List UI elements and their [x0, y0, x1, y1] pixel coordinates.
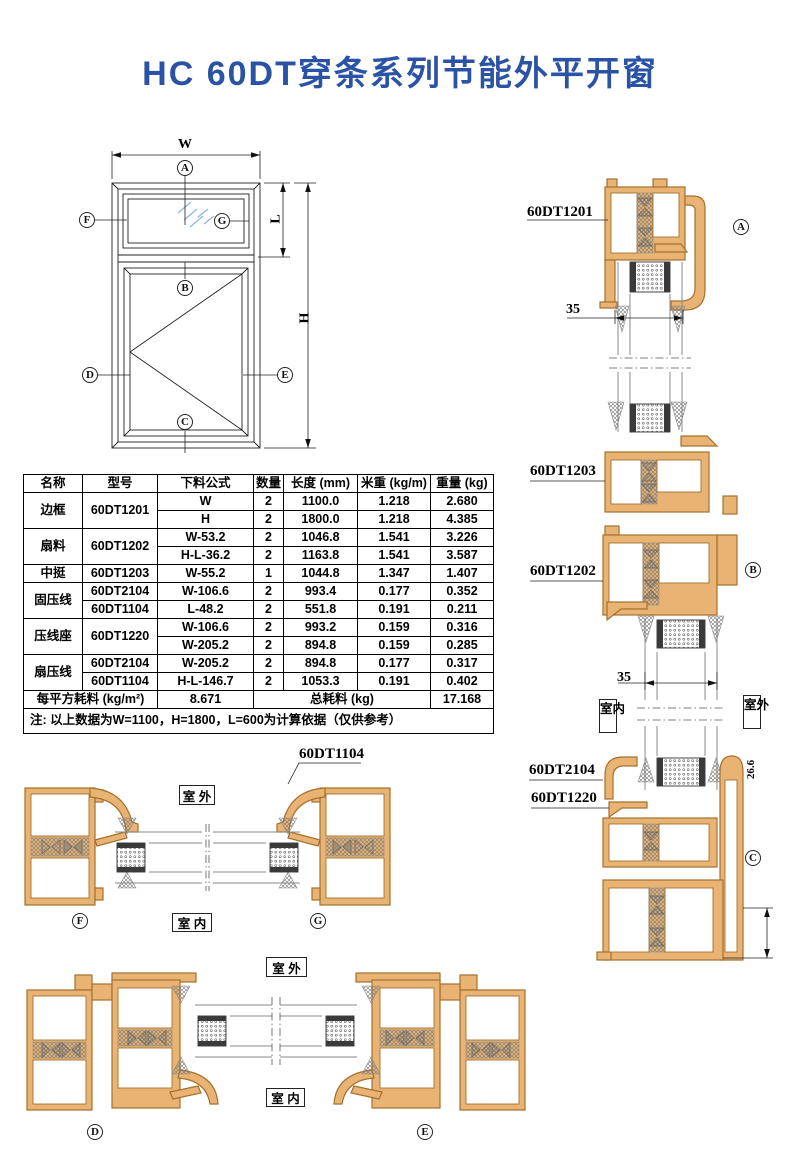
- page-title: HC 60DT穿条系列节能外平开窗: [0, 46, 800, 95]
- elevation-frame: [112, 183, 260, 448]
- cell-weight: 3.226: [431, 529, 494, 547]
- section-marker-c: C: [745, 850, 761, 866]
- elevation-upper-dim-label: L: [270, 214, 284, 223]
- cell-qty: 2: [254, 601, 284, 619]
- cell-weight: 3.587: [431, 547, 494, 565]
- table-row: 60DT1104 L-48.2 2 551.8 0.191 0.211: [24, 601, 494, 619]
- elevation-marker-b: B: [177, 280, 193, 296]
- cell-kgm: 1.347: [358, 565, 431, 583]
- elevation-marker-e: E: [277, 367, 293, 383]
- cell-kgm: 0.177: [358, 583, 431, 601]
- cell-name: 固压线: [24, 583, 83, 619]
- dim-35-mid: 35: [617, 671, 631, 685]
- cell-name: 扇压线: [24, 655, 83, 691]
- cell-model: 60DT2104: [83, 583, 158, 601]
- header-model: 型号: [83, 475, 158, 493]
- cell-qty: 2: [254, 529, 284, 547]
- section-b-upper-glass: [608, 372, 687, 432]
- page: HC 60DT穿条系列节能外平开窗 W L H A F G: [0, 0, 800, 1155]
- cell-length: 993.2: [284, 619, 358, 637]
- cell-model: 60DT1104: [83, 601, 158, 619]
- elevation-marker-a: A: [177, 160, 193, 176]
- cell-formula: H: [158, 511, 254, 529]
- cell-qty: 2: [254, 547, 284, 565]
- cell-qty: 2: [254, 637, 284, 655]
- section-marker-b: B: [745, 562, 761, 578]
- cell-formula: H-L-146.7: [158, 673, 254, 691]
- fg-outdoor-box: 室 外: [179, 785, 215, 805]
- header-weight: 重量 (kg): [431, 475, 494, 493]
- fg-right-profile-mirrored: [209, 788, 390, 905]
- table-row: 压线座 60DT1220 W-106.6 2 993.2 0.159 0.316: [24, 619, 494, 637]
- profile-label-60dt1202: 60DT1202: [530, 564, 596, 579]
- summary-per-sqm-value: 8.671: [158, 691, 254, 709]
- section-marker-e: E: [417, 1124, 433, 1140]
- fg-label-leader: [288, 763, 361, 784]
- profile-label-60dt2104: 60DT2104: [529, 763, 595, 778]
- cell-formula: W-106.6: [158, 619, 254, 637]
- cell-name: 压线座: [24, 619, 83, 655]
- cell-length: 894.8: [284, 655, 358, 673]
- table-header-row: 名称 型号 下料公式 数量 长度 (mm) 米重 (kg/m) 重量 (kg): [24, 475, 494, 493]
- de-right-profiles-mirrored: [280, 973, 525, 1110]
- section-b-sash-profile: [603, 526, 737, 620]
- cell-qty: 2: [254, 619, 284, 637]
- profile-label-60dt1104: 60DT1104: [299, 747, 364, 762]
- cell-length: 1800.0: [284, 511, 358, 529]
- cell-weight: 0.316: [431, 619, 494, 637]
- summary-total-value: 17.168: [431, 691, 494, 709]
- elevation-height-dim-label: H: [298, 313, 312, 324]
- header-length: 长度 (mm): [284, 475, 358, 493]
- table-note: 注: 以上数据为W=1100，H=1800，L=600为计算依据（仅供参考）: [24, 709, 494, 734]
- cell-length: 1100.0: [284, 493, 358, 511]
- elevation-marker-g: G: [214, 213, 230, 229]
- cell-weight: 0.317: [431, 655, 494, 673]
- cell-length: 1044.8: [284, 565, 358, 583]
- section-fg-drawing: [20, 742, 440, 938]
- cell-weight: 1.407: [431, 565, 494, 583]
- cell-qty: 2: [254, 493, 284, 511]
- section-marker-a: A: [733, 219, 749, 235]
- header-name: 名称: [24, 475, 83, 493]
- table-row: 扇压线 60DT2104 W-205.2 2 894.8 0.177 0.317: [24, 655, 494, 673]
- table-row: 固压线 60DT2104 W-106.6 2 993.4 0.177 0.352: [24, 583, 494, 601]
- section-c-profile: [597, 756, 743, 960]
- cell-model: 60DT1201: [83, 493, 158, 529]
- cell-weight: 0.211: [431, 601, 494, 619]
- elevation-marker-f: F: [79, 212, 95, 228]
- table-note-row: 注: 以上数据为W=1100，H=1800，L=600为计算依据（仅供参考）: [24, 709, 494, 734]
- header-qty: 数量: [254, 475, 284, 493]
- cell-formula: H-L-36.2: [158, 547, 254, 565]
- window-elevation-drawing: [60, 135, 360, 475]
- cell-weight: 4.385: [431, 511, 494, 529]
- cell-name: 扇料: [24, 529, 83, 565]
- elevation-dimensions: [95, 151, 316, 453]
- profile-label-60dt1220: 60DT1220: [531, 791, 597, 806]
- de-left-profiles: [27, 973, 272, 1110]
- section-c-glass: [638, 758, 724, 786]
- outdoor-box-vertical: 室外: [743, 695, 761, 729]
- cell-model: 60DT1203: [83, 565, 158, 583]
- profile-label-60dt1203: 60DT1203: [530, 464, 596, 479]
- section-b-mullion-profile: [605, 436, 737, 514]
- cell-formula: W-106.6: [158, 583, 254, 601]
- cell-formula: W: [158, 493, 254, 511]
- cutting-list-table: 名称 型号 下料公式 数量 长度 (mm) 米重 (kg/m) 重量 (kg) …: [23, 474, 494, 734]
- cell-length: 551.8: [284, 601, 358, 619]
- cell-kgm: 0.177: [358, 655, 431, 673]
- cell-kgm: 1.218: [358, 493, 431, 511]
- elevation-width-dim-label: W: [178, 138, 192, 152]
- cell-length: 1163.8: [284, 547, 358, 565]
- cell-qty: 1: [254, 565, 284, 583]
- cell-formula: W-53.2: [158, 529, 254, 547]
- section-marker-d: D: [87, 1124, 103, 1140]
- de-outdoor-box: 室 外: [266, 957, 307, 977]
- summary-per-sqm-label: 每平方耗料 (kg/m²): [24, 691, 158, 709]
- cell-model: 60DT1202: [83, 529, 158, 565]
- table-row: 中挺 60DT1203 W-55.2 1 1044.8 1.347 1.407: [24, 565, 494, 583]
- cell-formula: L-48.2: [158, 601, 254, 619]
- section-a-profile: [600, 179, 705, 332]
- cell-kgm: 0.191: [358, 673, 431, 691]
- cell-qty: 2: [254, 511, 284, 529]
- table-row: 60DT1104 H-L-146.7 2 1053.3 0.191 0.402: [24, 673, 494, 691]
- fg-left-profile: [25, 788, 206, 905]
- table-row: 边框 60DT1201 W 2 1100.0 1.218 2.680: [24, 493, 494, 511]
- cell-length: 1046.8: [284, 529, 358, 547]
- cell-kgm: 0.159: [358, 637, 431, 655]
- cell-name: 中挺: [24, 565, 83, 583]
- header-formula: 下料公式: [158, 475, 254, 493]
- cell-weight: 0.285: [431, 637, 494, 655]
- cell-kgm: 1.541: [358, 529, 431, 547]
- de-indoor-box: 室 内: [266, 1088, 305, 1107]
- profile-label-60dt1201: 60DT1201: [527, 205, 593, 220]
- cell-kgm: 0.159: [358, 619, 431, 637]
- cell-kgm: 0.191: [358, 601, 431, 619]
- summary-total-label: 总耗料 (kg): [254, 691, 431, 709]
- section-marker-f: F: [72, 913, 88, 929]
- cell-kgm: 1.218: [358, 511, 431, 529]
- elevation-marker-d: D: [82, 367, 98, 383]
- cell-length: 993.4: [284, 583, 358, 601]
- section-de-drawing: [20, 952, 540, 1152]
- cell-qty: 2: [254, 655, 284, 673]
- cell-formula: W-55.2: [158, 565, 254, 583]
- section-marker-g: G: [310, 913, 326, 929]
- dim-35-top: 35: [566, 303, 580, 317]
- elevation-marker-c: C: [177, 414, 193, 430]
- cell-model: 60DT1104: [83, 673, 158, 691]
- cell-model: 60DT2104: [83, 655, 158, 673]
- cell-length: 1053.3: [284, 673, 358, 691]
- cell-formula: W-205.2: [158, 637, 254, 655]
- table-row: 扇料 60DT1202 W-53.2 2 1046.8 1.541 3.226: [24, 529, 494, 547]
- header-kgm: 米重 (kg/m): [358, 475, 431, 493]
- cell-name: 边框: [24, 493, 83, 529]
- indoor-box-vertical: 室内: [599, 699, 617, 733]
- cell-qty: 2: [254, 673, 284, 691]
- cell-formula: W-205.2: [158, 655, 254, 673]
- cell-model: 60DT1220: [83, 619, 158, 655]
- cell-weight: 0.402: [431, 673, 494, 691]
- cell-weight: 0.352: [431, 583, 494, 601]
- cell-length: 894.8: [284, 637, 358, 655]
- cell-weight: 2.680: [431, 493, 494, 511]
- cell-qty: 2: [254, 583, 284, 601]
- fg-indoor-box: 室 内: [172, 913, 212, 932]
- dim-26-6: 26.6: [746, 760, 757, 779]
- cell-kgm: 1.541: [358, 547, 431, 565]
- table-summary-row: 每平方耗料 (kg/m²) 8.671 总耗料 (kg) 17.168: [24, 691, 494, 709]
